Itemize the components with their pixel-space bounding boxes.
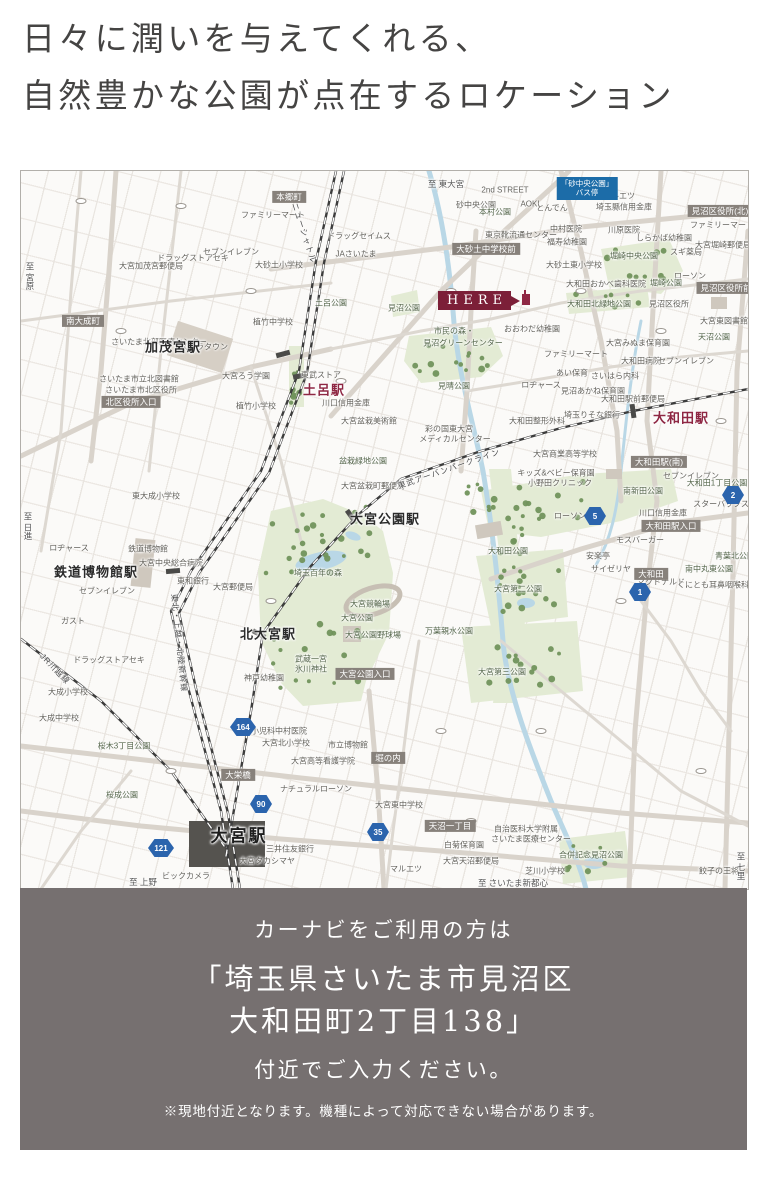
here-site-icon xyxy=(522,294,530,305)
tree-icon xyxy=(543,596,548,601)
tree-icon xyxy=(327,630,334,637)
direction-label: 至 七里 xyxy=(735,852,747,880)
tree-icon xyxy=(491,496,498,503)
place-label: 大宮中央総合病院 xyxy=(139,558,203,569)
tree-icon xyxy=(505,602,512,609)
bus-stop-icon xyxy=(536,729,546,734)
area-badge: 堀の内 xyxy=(371,752,405,764)
place-label: 大宮タカシマヤ xyxy=(239,856,295,867)
navi-note: ※現地付近となります。機種によって対応できない場合があります。 xyxy=(20,1100,747,1120)
park-label: 埼玉百年の森 xyxy=(294,568,342,579)
tree-icon xyxy=(358,548,364,554)
place-label: 大砂土東小学校 xyxy=(546,260,602,271)
tree-icon xyxy=(512,525,516,529)
park-label: 土呂公園 xyxy=(315,298,347,309)
place-label: ローソン xyxy=(554,511,586,522)
minor-road xyxy=(149,171,181,471)
tree-icon xyxy=(511,538,516,543)
tree-icon xyxy=(433,370,440,377)
building-block xyxy=(606,469,622,479)
direction-label: 至 日進 xyxy=(22,512,34,540)
place-label: 川口信用金庫 xyxy=(322,398,370,409)
tree-icon xyxy=(636,300,642,306)
park-label: 見沼グリーンセンター xyxy=(423,338,503,349)
tree-icon xyxy=(498,574,504,580)
area-badge: 天沼一丁目 xyxy=(425,820,476,832)
bus-stop-icon xyxy=(166,769,176,774)
place-label: 大和田おかべ歯科医院 xyxy=(566,279,646,290)
park-label: 大宮第二公園 xyxy=(494,584,542,595)
tree-icon xyxy=(264,571,269,576)
tree-icon xyxy=(317,621,324,628)
tree-icon xyxy=(514,653,518,657)
navi-address-line1: 「埼玉県さいたま市見沼区 xyxy=(20,958,747,1000)
tree-icon xyxy=(278,686,282,690)
tree-icon xyxy=(300,512,305,517)
bus-stop-icon xyxy=(116,329,126,334)
tree-icon xyxy=(520,533,524,537)
park-label: 青葉北公園 xyxy=(715,551,749,562)
tree-icon xyxy=(604,294,608,298)
place-label: 植竹小学校 xyxy=(236,401,276,412)
place-label: とんでん xyxy=(536,203,568,214)
tree-icon xyxy=(412,363,418,369)
navi-address-line2: 大和田町2丁目138」 xyxy=(20,1000,747,1042)
tree-icon xyxy=(304,525,310,531)
tree-icon xyxy=(454,360,458,364)
tree-icon xyxy=(467,351,471,355)
tree-icon xyxy=(300,541,306,547)
area-badge: 見沼区役所前 xyxy=(696,282,749,294)
place-label: 芝川小学校 xyxy=(525,866,565,877)
car-navi-panel: カーナビをご利用の方は 「埼玉県さいたま市見沼区 大和田町2丁目138」 付近で… xyxy=(20,888,747,1150)
park-label: 南中丸東公園 xyxy=(685,564,733,575)
tree-icon xyxy=(556,568,561,573)
tree-icon xyxy=(320,513,325,518)
tree-icon xyxy=(548,676,555,683)
place-label: ガスト xyxy=(61,616,85,627)
park-label: 大宮公園野球場 xyxy=(345,630,401,641)
park-label: 堀崎中央公園 xyxy=(610,251,658,262)
place-label: おおわだ幼稚園 xyxy=(504,324,560,335)
page-header: 日々に潤いを与えてくれる、 自然豊かな公園が点在するロケーション xyxy=(22,22,752,112)
tree-icon xyxy=(585,868,591,874)
tree-icon xyxy=(320,538,326,544)
place-label: さいたま市北区役所 xyxy=(105,385,177,396)
place-label: 神戸幼稚園 xyxy=(244,673,284,684)
place-label: 大宮高等看護学院 xyxy=(291,756,355,767)
tree-icon xyxy=(500,609,505,614)
tree-icon xyxy=(324,555,330,561)
tree-icon xyxy=(602,861,607,866)
station-label: 大宮公園駅 xyxy=(350,509,420,528)
area-badge: 大砂土中学校前 xyxy=(452,243,520,255)
place-label: 福寿幼稚園 xyxy=(547,237,587,248)
place-label: 安楽亭 xyxy=(586,551,610,562)
area-badge: 見沼区役所(北) xyxy=(688,205,749,217)
place-label: ファミリーマート xyxy=(690,220,749,231)
area-badge: 本郷町 xyxy=(272,191,306,203)
place-label: 大宮ろう学園 xyxy=(222,371,270,382)
place-label: 大宮東図書館 xyxy=(700,316,748,327)
park-label: 市民の森・ xyxy=(434,326,474,337)
place-label: 大成小学校 xyxy=(48,687,88,698)
direction-label: 至 東大宮 xyxy=(428,178,464,190)
headline-line1: 日々に潤いを与えてくれる、 xyxy=(22,22,752,55)
bus-stop-icon xyxy=(436,729,446,734)
tree-icon xyxy=(548,646,554,652)
tree-icon xyxy=(491,505,496,510)
here-label: HERE xyxy=(438,291,511,310)
tree-icon xyxy=(551,601,557,607)
place-label: 東大成小学校 xyxy=(132,491,180,502)
park-label: 堀崎公園 xyxy=(650,278,682,289)
tree-icon xyxy=(307,679,311,683)
place-label: 鉄道博物館 xyxy=(128,544,168,555)
park-label: 大宮第三公園 xyxy=(478,667,526,678)
direction-label: 至 上野 xyxy=(129,876,157,888)
location-map: HERE 大宮加茂宮郵便局ドラッグストアセキ大砂土小学校JAさいたまドラッグセイ… xyxy=(20,170,749,890)
place-label: 埼玉りそな銀行 xyxy=(564,410,620,421)
tree-icon xyxy=(428,361,434,367)
tree-icon xyxy=(458,362,463,367)
park-label: 大和田公園 xyxy=(488,546,528,557)
tree-icon xyxy=(470,509,476,515)
station-label: 鉄道博物館駅 xyxy=(54,562,138,581)
area-badge: 北区役所入口 xyxy=(101,396,160,408)
bus-stop-badge: 「砂中央公園」バス停 xyxy=(557,177,618,200)
tree-icon xyxy=(271,661,275,665)
place-label: セブンイレブン xyxy=(203,247,259,258)
tree-icon xyxy=(295,528,300,533)
place-label: 大和田病院 xyxy=(621,356,661,367)
tree-icon xyxy=(310,522,317,529)
tree-icon xyxy=(537,517,541,521)
place-label: 川口信用金庫 xyxy=(639,508,687,519)
bus-stop-icon xyxy=(176,204,186,209)
tree-icon xyxy=(485,363,490,368)
place-label: 2nd STREET xyxy=(481,186,528,195)
tree-icon xyxy=(518,569,522,573)
place-label: 市立博物館 xyxy=(328,740,368,751)
tree-icon xyxy=(571,844,575,848)
tree-icon xyxy=(513,505,519,511)
place-label: 大宮郵便局 xyxy=(213,582,253,593)
place-label: 小児科中村医院 xyxy=(251,726,307,737)
station-label: 土呂駅 xyxy=(303,380,345,399)
minor-road xyxy=(41,171,81,551)
area-badge: 大栄橋 xyxy=(221,769,255,781)
tree-icon xyxy=(526,501,531,506)
here-marker: HERE xyxy=(438,291,511,312)
tree-icon xyxy=(535,507,541,513)
park-label: 盆栽緑地公園 xyxy=(339,456,387,467)
tree-icon xyxy=(487,508,492,513)
station-mark xyxy=(630,404,637,419)
tree-icon xyxy=(521,514,525,518)
area-badge: 大和田 xyxy=(634,568,668,580)
place-label: 大宮盆栽町郵便局 xyxy=(341,481,405,492)
tree-icon xyxy=(519,526,524,531)
navi-instruction-tail: 付近でご入力ください。 xyxy=(20,1054,747,1084)
tree-icon xyxy=(505,678,511,684)
station-label: 大和田駅 xyxy=(653,408,709,427)
tree-icon xyxy=(512,565,516,569)
tree-icon xyxy=(517,485,523,491)
minor-road xyxy=(641,601,731,731)
tree-icon xyxy=(567,865,572,870)
place-label: ドラッグセイムス xyxy=(327,231,391,242)
navi-instruction-lead: カーナビをご利用の方は xyxy=(20,914,747,944)
place-label: さいたま医療センター xyxy=(491,834,571,845)
tree-icon xyxy=(270,521,275,526)
tree-icon xyxy=(287,556,292,561)
tree-icon xyxy=(513,657,520,664)
park-label: 見沼公園 xyxy=(388,303,420,314)
tree-icon xyxy=(467,485,471,489)
place-label: 大和田整形外科 xyxy=(509,416,565,427)
place-label: 白菊保育園 xyxy=(444,840,484,851)
bus-stop-icon xyxy=(266,599,276,604)
tree-icon xyxy=(342,554,346,558)
park-label: 万葉親水公園 xyxy=(425,626,473,637)
place-label: マルエツ xyxy=(390,864,422,875)
place-label: 大宮堀崎郵便局 xyxy=(695,240,749,251)
tree-icon xyxy=(465,490,470,495)
station-label: 大宮駅 xyxy=(211,822,268,847)
tree-icon xyxy=(529,669,534,674)
tree-icon xyxy=(555,492,561,498)
park-label: 氷川神社 xyxy=(295,664,327,675)
place-label: ロヂャース xyxy=(49,543,89,554)
park-label: 合併記念見沼公園 xyxy=(559,850,623,861)
tree-icon xyxy=(365,552,371,558)
bus-stop-icon xyxy=(76,199,86,204)
tree-icon xyxy=(291,545,296,550)
place-label: しらかば幼稚園 xyxy=(636,233,692,244)
tree-icon xyxy=(476,483,480,487)
place-label: ナチュラルローソン xyxy=(280,784,352,795)
place-label: メディカルセンター xyxy=(419,434,490,445)
tree-icon xyxy=(518,605,525,612)
tree-icon xyxy=(299,557,305,563)
place-label: さいたま市立北図書館 xyxy=(99,374,179,385)
tree-icon xyxy=(521,574,526,579)
park-label: 大和田北緑地公園 xyxy=(567,299,631,310)
place-label: ファミリーマート xyxy=(544,349,608,360)
building-block xyxy=(711,297,727,309)
place-label: あい保育 xyxy=(556,368,588,379)
tree-icon xyxy=(478,486,484,492)
place-label: 見沼区役所 xyxy=(649,299,689,310)
place-label: 大宮盆栽美術館 xyxy=(341,416,397,427)
tree-icon xyxy=(661,248,667,254)
major-road xyxy=(21,349,331,456)
tree-icon xyxy=(514,678,519,683)
tree-icon xyxy=(366,530,372,536)
place-label: 大宮みぬま保育園 xyxy=(606,338,670,349)
place-label: サイゼリヤ xyxy=(591,564,631,575)
station-label: 北大宮駅 xyxy=(240,624,296,643)
tree-icon xyxy=(609,293,614,298)
major-road xyxy=(369,691,384,889)
place-label: 大宮東中学校 xyxy=(375,800,423,811)
place-label: 大和田駅前郵便局 xyxy=(601,394,665,405)
tree-icon xyxy=(301,550,308,557)
place-label: 大宮天沼郵便局 xyxy=(443,856,499,867)
station-mark xyxy=(166,568,180,574)
here-pointer-icon xyxy=(511,296,520,306)
tree-icon xyxy=(537,682,543,688)
tree-icon xyxy=(502,569,506,573)
area-badge: 南大成町 xyxy=(62,315,104,327)
place-label: 大宮商業高等学校 xyxy=(533,449,597,460)
tree-icon xyxy=(505,515,511,521)
park-label: 南新田公園 xyxy=(623,486,663,497)
place-label: 大宮北小学校 xyxy=(262,738,310,749)
area-badge: 大宮公園入口 xyxy=(335,668,394,680)
tree-icon xyxy=(278,648,282,652)
tree-icon xyxy=(480,356,485,361)
park-label: 桜木3丁目公園 xyxy=(98,741,150,752)
park-label: 天沼公園 xyxy=(698,332,730,343)
park-label: 見晴公園 xyxy=(438,381,470,392)
place-label: 小野田クリニック xyxy=(528,478,592,489)
tree-icon xyxy=(626,293,630,297)
tree-icon xyxy=(464,368,468,372)
area-badge: 大和田駅入口 xyxy=(641,520,700,532)
headline-line2: 自然豊かな公園が点在するロケーション xyxy=(22,79,752,112)
place-label: セブンイレブン xyxy=(79,586,135,597)
tree-icon xyxy=(320,533,324,537)
place-label: ドラッグストアセキ xyxy=(73,655,145,666)
place-label: 埼玉縣信用金庫 xyxy=(596,202,652,213)
tree-icon xyxy=(294,678,298,682)
park-label: 大宮競輪場 xyxy=(350,599,390,610)
park-label: 大宮公園 xyxy=(341,613,373,624)
tree-icon xyxy=(478,366,485,373)
tree-icon xyxy=(289,401,293,405)
tree-icon xyxy=(494,644,500,650)
bus-stop-icon xyxy=(616,599,626,604)
place-label: JAさいたま xyxy=(335,249,376,260)
tree-icon xyxy=(557,652,561,656)
place-label: 東和銀行 xyxy=(177,576,209,587)
place-label: 三井住友銀行 xyxy=(266,844,314,855)
place-label: 植竹中学校 xyxy=(253,317,293,328)
station-label: 加茂宮駅 xyxy=(145,337,201,356)
place-label: セブンイレブン xyxy=(658,356,714,367)
park-label: 桜成公園 xyxy=(106,790,138,801)
tree-icon xyxy=(332,681,336,685)
tree-icon xyxy=(506,654,511,659)
bus-stop-icon xyxy=(716,419,726,424)
bus-stop-icon xyxy=(656,329,666,334)
bus-stop-icon xyxy=(696,769,706,774)
tree-icon xyxy=(486,680,492,686)
place-label: 餃子の王将 xyxy=(699,866,739,877)
tree-icon xyxy=(302,646,308,652)
place-label: さいはら内科 xyxy=(591,371,639,382)
place-label: 大成中学校 xyxy=(39,713,79,724)
place-label: 大砂土小学校 xyxy=(255,260,303,271)
area-badge: 大和田駅(南) xyxy=(631,456,687,468)
place-label: 中村医院 xyxy=(550,224,582,235)
park-label: 本村公園 xyxy=(479,207,511,218)
tree-icon xyxy=(418,369,422,373)
tree-icon xyxy=(579,498,583,502)
direction-label: 至 宮原 xyxy=(24,262,36,290)
place-label: ビックカメラ xyxy=(162,871,210,882)
place-label: くにとも耳鼻咽喉科 xyxy=(677,580,749,591)
place-label: モスバーガー xyxy=(616,535,664,546)
tree-icon xyxy=(341,652,347,658)
bus-stop-icon xyxy=(246,289,256,294)
place-label: ロヂャース xyxy=(521,380,561,391)
